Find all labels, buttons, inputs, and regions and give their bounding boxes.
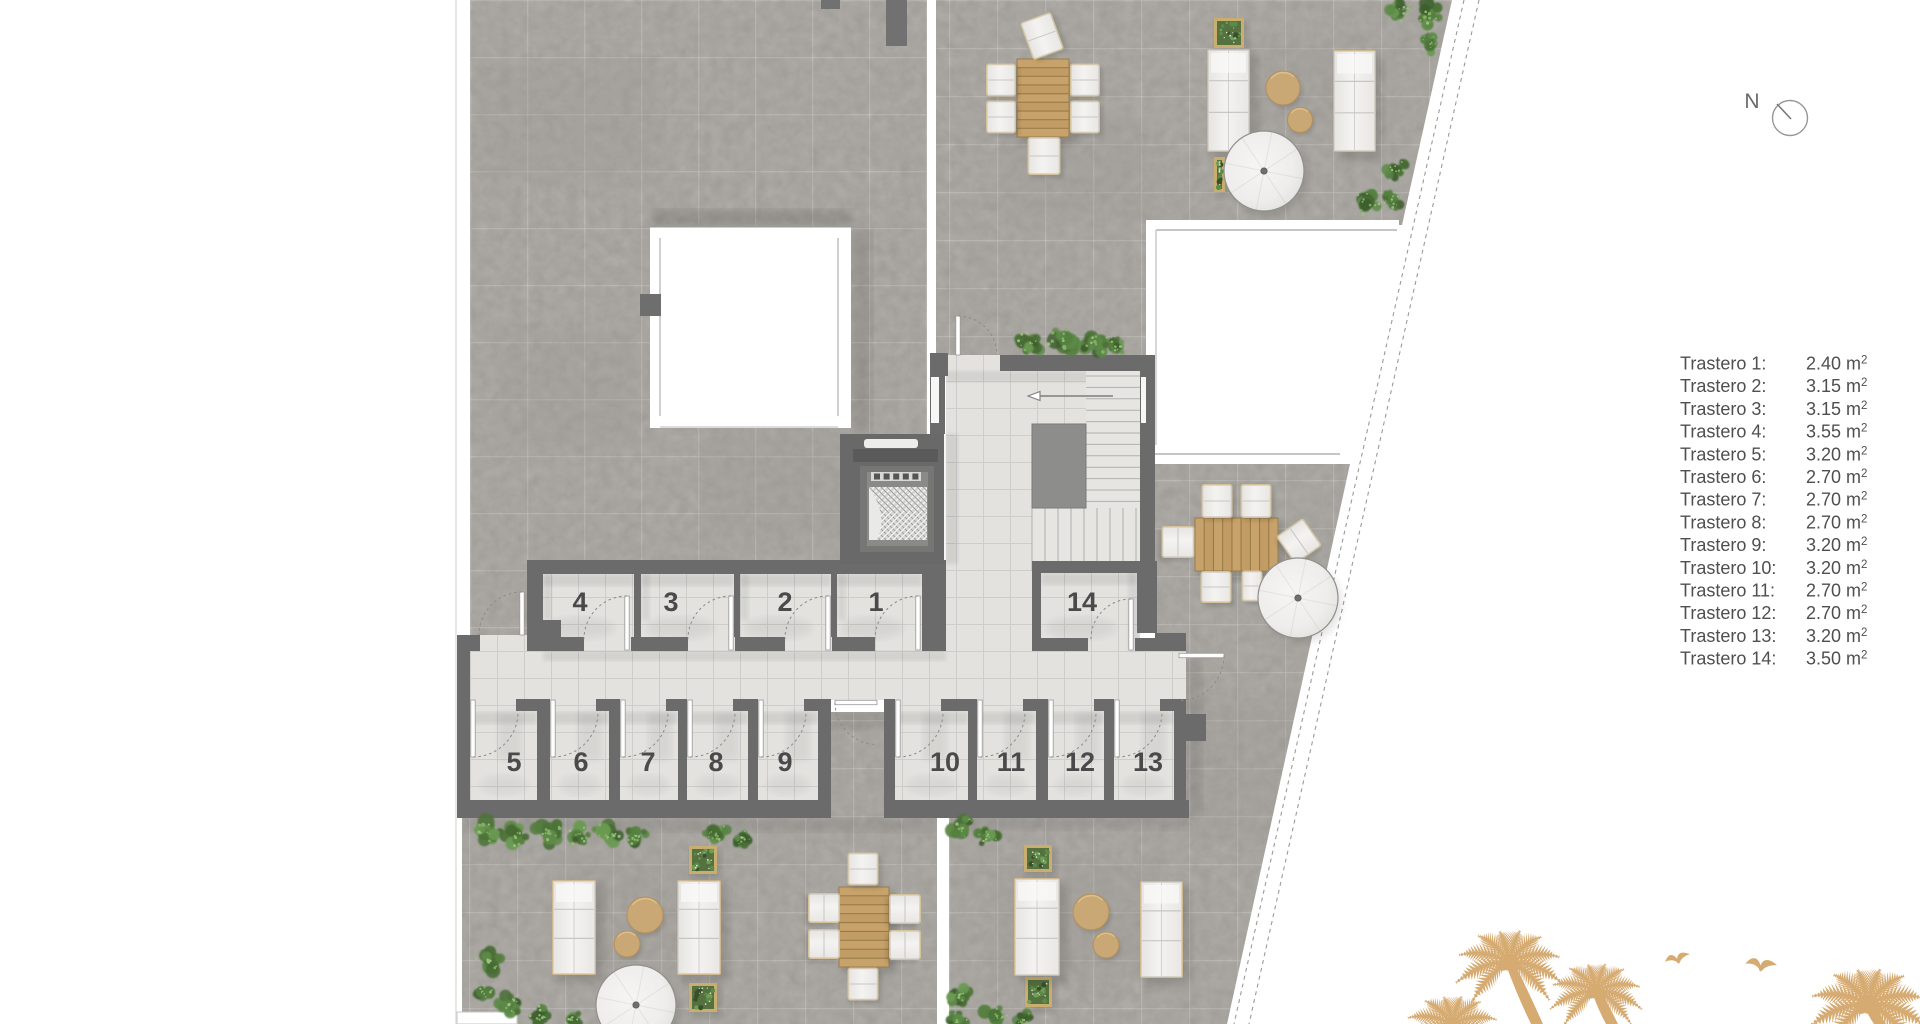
svg-text:3.15 m2: 3.15 m2	[1806, 376, 1867, 396]
svg-text:3.20 m2: 3.20 m2	[1806, 444, 1867, 464]
svg-text:Trastero 13:: Trastero 13:	[1680, 626, 1776, 646]
svg-text:4: 4	[572, 587, 587, 617]
svg-text:2.70 m2: 2.70 m2	[1806, 581, 1867, 601]
svg-text:10: 10	[930, 747, 960, 777]
svg-text:Trastero 7:: Trastero 7:	[1680, 490, 1766, 510]
svg-text:6: 6	[573, 747, 588, 777]
svg-text:Trastero 5:: Trastero 5:	[1680, 444, 1766, 464]
svg-text:3.20 m2: 3.20 m2	[1806, 558, 1867, 578]
svg-text:5: 5	[506, 747, 521, 777]
svg-text:14: 14	[1067, 587, 1097, 617]
svg-text:Trastero 1:: Trastero 1:	[1680, 354, 1766, 374]
svg-text:2: 2	[777, 587, 792, 617]
svg-text:3.50 m2: 3.50 m2	[1806, 649, 1867, 669]
svg-text:2.70 m2: 2.70 m2	[1806, 467, 1867, 487]
svg-text:3.20 m2: 3.20 m2	[1806, 626, 1867, 646]
svg-text:13: 13	[1133, 747, 1163, 777]
svg-text:2.40 m2: 2.40 m2	[1806, 354, 1867, 374]
svg-text:Trastero 10:: Trastero 10:	[1680, 558, 1776, 578]
svg-text:3.15 m2: 3.15 m2	[1806, 399, 1867, 419]
svg-text:Trastero 11:: Trastero 11:	[1680, 581, 1775, 601]
svg-text:3.20 m2: 3.20 m2	[1806, 535, 1867, 555]
svg-text:Trastero 9:: Trastero 9:	[1680, 535, 1766, 555]
svg-text:11: 11	[997, 747, 1026, 777]
svg-text:Trastero 2:: Trastero 2:	[1680, 376, 1766, 396]
svg-text:2.70 m2: 2.70 m2	[1806, 603, 1867, 623]
svg-text:9: 9	[777, 747, 792, 777]
svg-text:Trastero 8:: Trastero 8:	[1680, 512, 1766, 532]
svg-text:1: 1	[868, 587, 883, 617]
svg-text:Trastero 12:: Trastero 12:	[1680, 603, 1776, 623]
svg-text:2.70 m2: 2.70 m2	[1806, 490, 1867, 510]
svg-text:12: 12	[1065, 747, 1095, 777]
svg-text:8: 8	[708, 747, 723, 777]
svg-text:N: N	[1744, 90, 1759, 113]
svg-text:3: 3	[663, 587, 678, 617]
svg-text:Trastero 4:: Trastero 4:	[1680, 422, 1766, 442]
svg-text:2.70 m2: 2.70 m2	[1806, 512, 1867, 532]
svg-text:7: 7	[640, 747, 655, 777]
svg-text:Trastero 3:: Trastero 3:	[1680, 399, 1766, 419]
svg-text:Trastero 14:: Trastero 14:	[1680, 649, 1776, 669]
svg-text:3.55 m2: 3.55 m2	[1806, 422, 1867, 442]
svg-text:Trastero 6:: Trastero 6:	[1680, 467, 1766, 487]
